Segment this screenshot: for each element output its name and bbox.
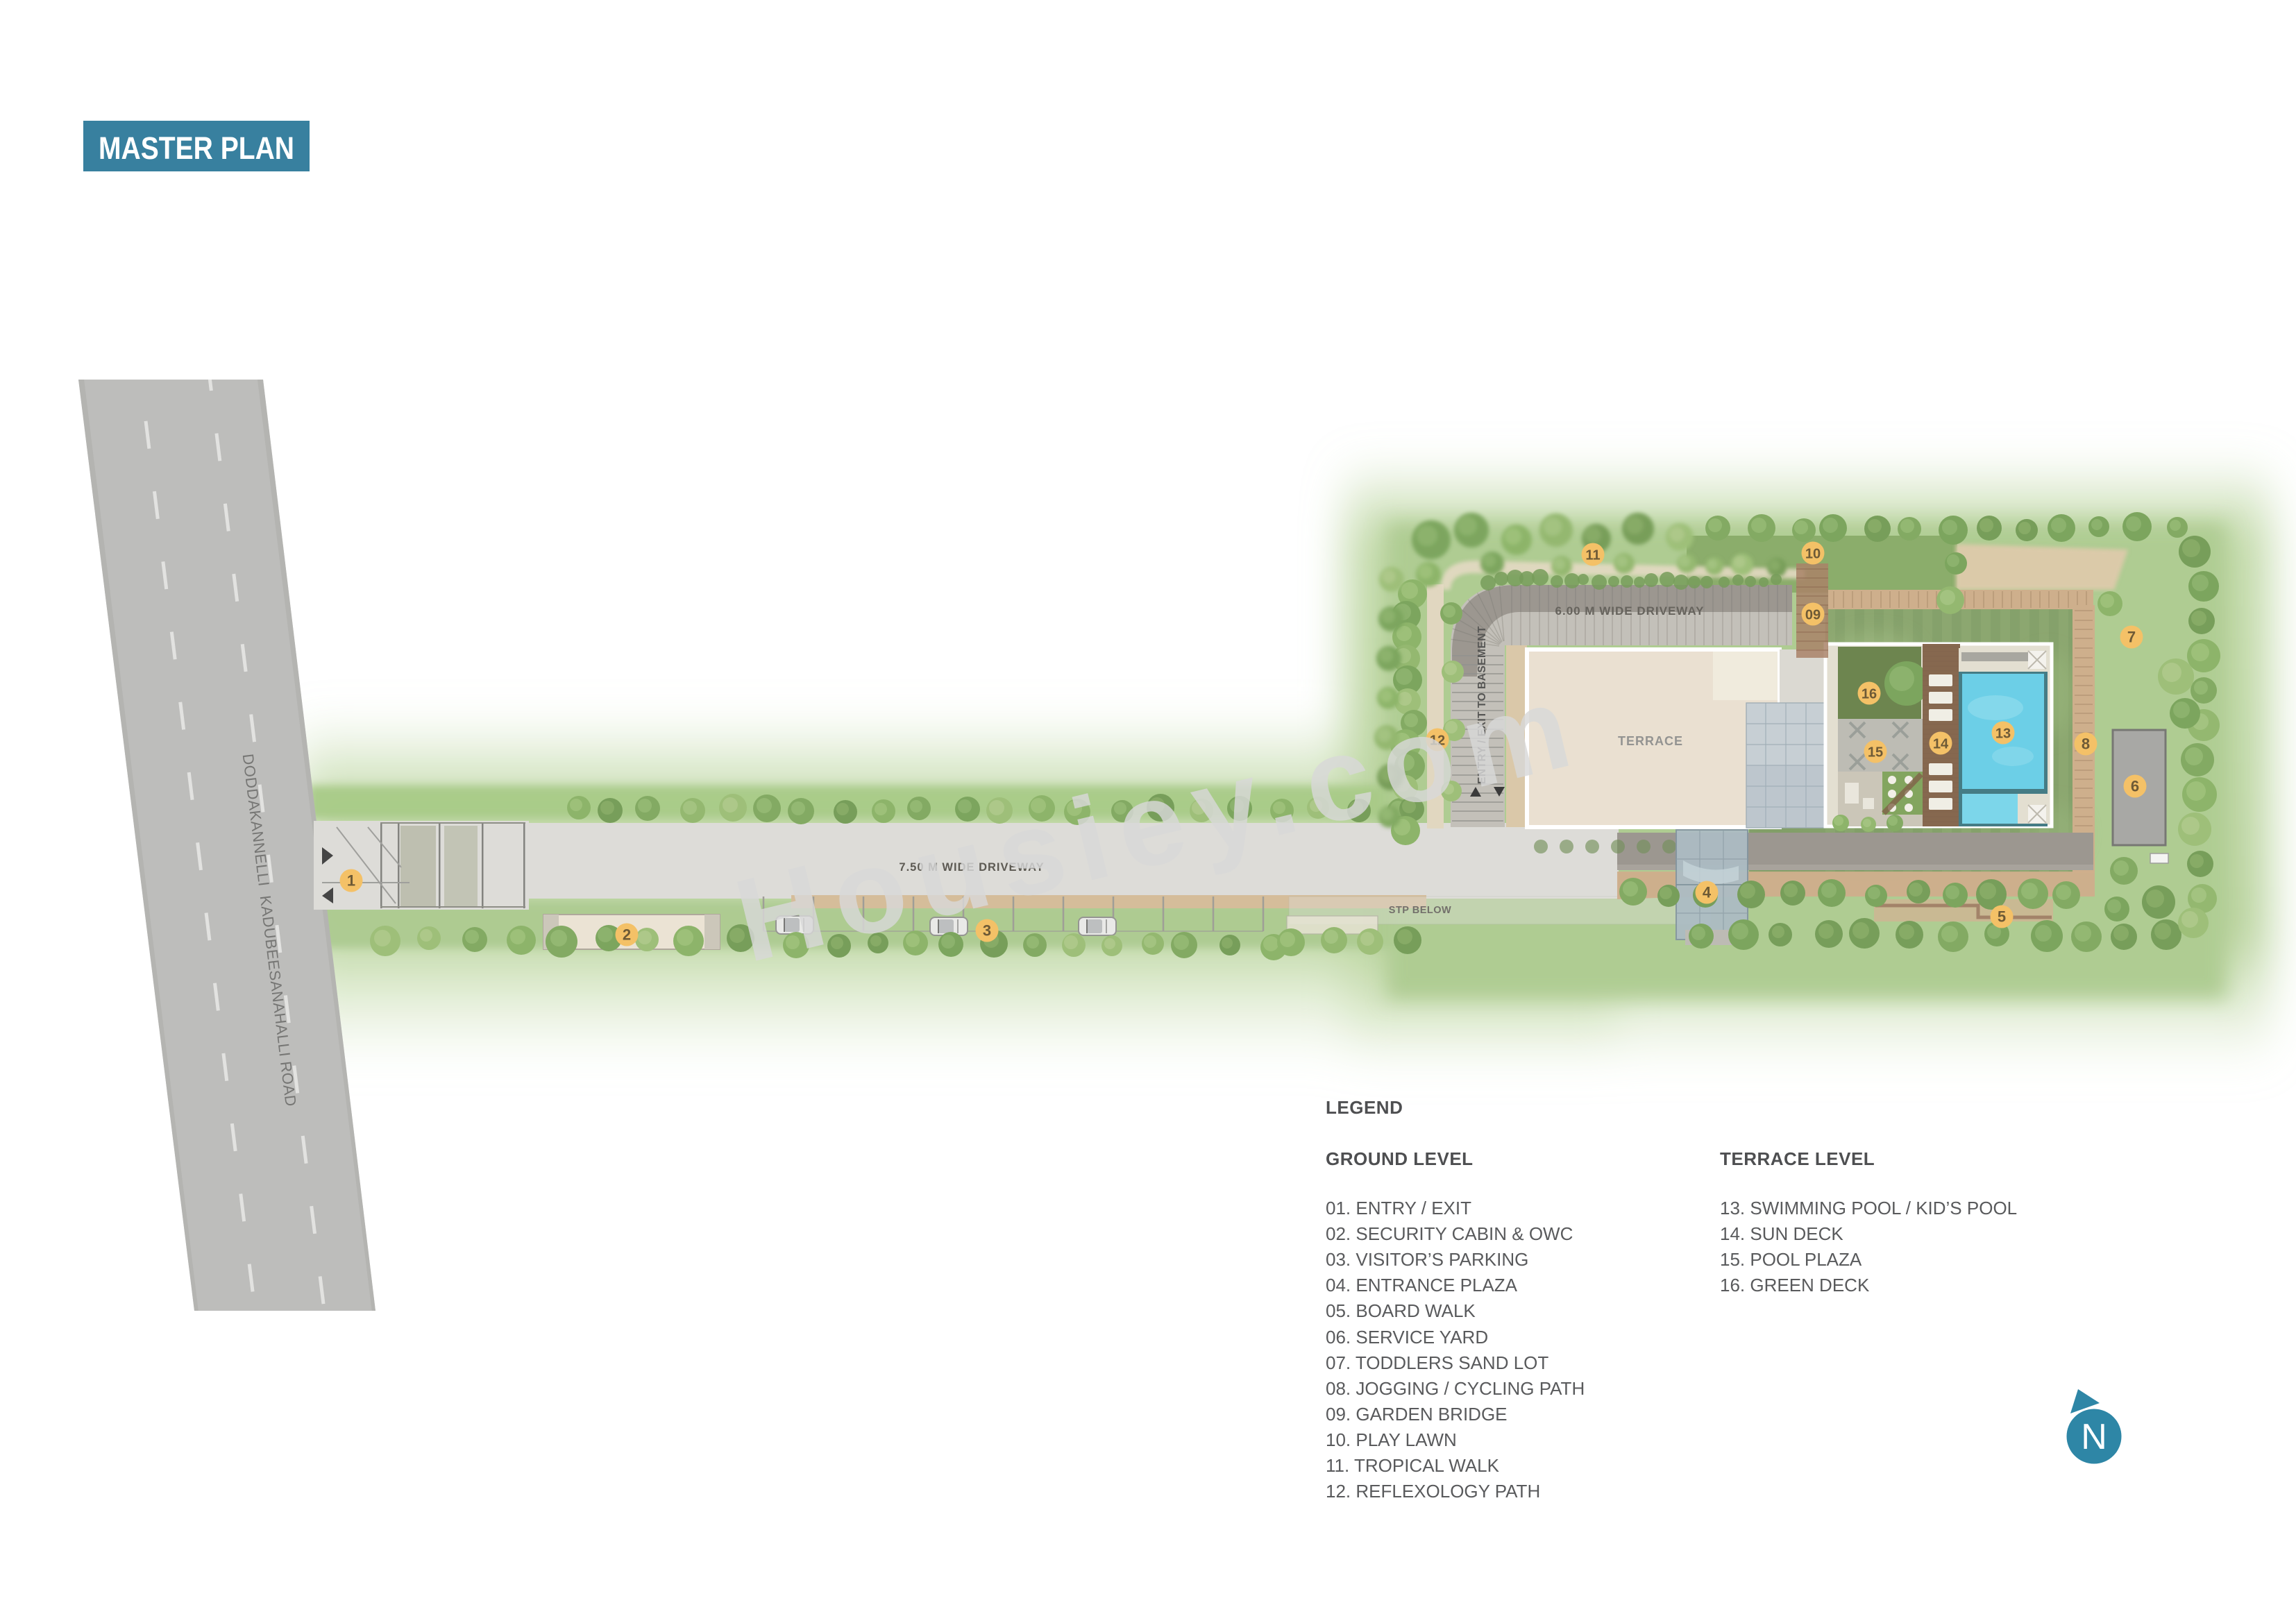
svg-text:16. GREEN DECK: 16. GREEN DECK [1720,1275,1870,1295]
svg-text:8: 8 [2082,736,2090,753]
svg-text:12. REFLEXOLOGY PATH: 12. REFLEXOLOGY PATH [1326,1481,1540,1502]
svg-text:15: 15 [1868,745,1883,760]
svg-text:15. POOL PLAZA: 15. POOL PLAZA [1720,1249,1862,1270]
svg-text:10. PLAY LAWN: 10. PLAY LAWN [1326,1429,1457,1450]
svg-text:14: 14 [1933,737,1949,752]
svg-text:TERRACE LEVEL: TERRACE LEVEL [1720,1148,1875,1169]
svg-text:7: 7 [2127,629,2136,646]
svg-text:03. VISITOR’S PARKING: 03. VISITOR’S PARKING [1326,1249,1528,1270]
svg-text:04. ENTRANCE PLAZA: 04. ENTRANCE PLAZA [1326,1275,1518,1295]
svg-text:09. GARDEN BRIDGE: 09. GARDEN BRIDGE [1326,1404,1508,1425]
svg-text:05. BOARD WALK: 05. BOARD WALK [1326,1300,1476,1321]
svg-text:5: 5 [1998,908,2006,926]
svg-text:06. SERVICE YARD: 06. SERVICE YARD [1326,1327,1488,1348]
svg-text:10: 10 [1805,547,1821,562]
svg-text:2: 2 [623,926,631,944]
svg-text:13: 13 [1995,726,2011,742]
svg-text:14. SUN DECK: 14. SUN DECK [1720,1223,1843,1244]
svg-text:13. SWIMMING POOL / KID’S POOL: 13. SWIMMING POOL / KID’S POOL [1720,1198,2017,1218]
svg-text:MASTER PLAN: MASTER PLAN [99,130,294,166]
svg-text:02. SECURITY CABIN & OWC: 02. SECURITY CABIN & OWC [1326,1223,1573,1244]
svg-text:6: 6 [2131,778,2139,795]
svg-text:GROUND LEVEL: GROUND LEVEL [1326,1148,1474,1169]
svg-text:4: 4 [1703,884,1712,901]
svg-text:08. JOGGING / CYCLING PATH: 08. JOGGING / CYCLING PATH [1326,1378,1585,1399]
svg-text:09: 09 [1805,608,1821,623]
svg-text:LEGEND: LEGEND [1326,1097,1403,1118]
svg-text:16: 16 [1862,687,1877,702]
svg-text:11: 11 [1585,548,1600,563]
svg-text:01. ENTRY / EXIT: 01. ENTRY / EXIT [1326,1198,1471,1218]
svg-text:11. TROPICAL WALK: 11. TROPICAL WALK [1326,1455,1500,1476]
svg-text:07. TODDLERS SAND LOT: 07. TODDLERS SAND LOT [1326,1352,1548,1373]
svg-text:1: 1 [347,872,355,890]
svg-text:N: N [2081,1417,2107,1457]
